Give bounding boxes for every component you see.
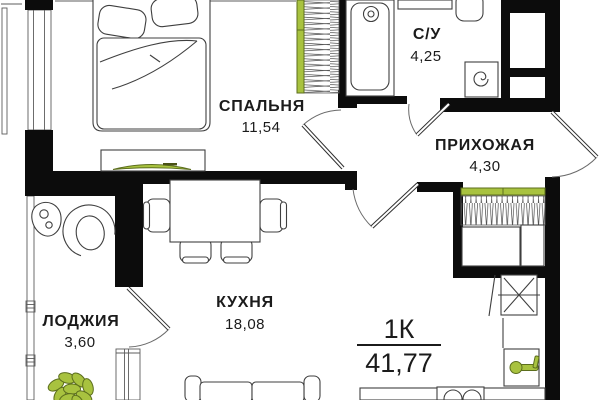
- washing-machine: [465, 62, 498, 97]
- bedroom-wardrobe: [297, 0, 339, 93]
- plant-icon: [46, 370, 95, 400]
- chair: [221, 239, 252, 263]
- total-area-block: 1К 41,77: [357, 314, 441, 378]
- loggia-area: 3,60: [64, 334, 95, 351]
- kitchen-area: 18,08: [225, 316, 265, 333]
- bathroom-label: С/У: [413, 26, 442, 43]
- bathroom-sink: [456, 0, 483, 21]
- dining-table-set: [144, 180, 287, 263]
- loggia-label: ЛОДЖИЯ: [42, 313, 119, 330]
- entrance-door: [552, 112, 597, 177]
- hallway-area: 4,30: [469, 158, 500, 175]
- bed: [93, 0, 210, 131]
- kitchen-door: [353, 184, 418, 227]
- bathroom-shelf: [398, 0, 452, 9]
- total-area-value: 41,77: [365, 348, 433, 378]
- bathtub: [346, 0, 394, 96]
- armchair: [53, 195, 123, 265]
- bedroom-area: 11,54: [242, 119, 281, 136]
- dining-table: [170, 180, 260, 242]
- side-table: [32, 202, 61, 236]
- bedroom-window: [28, 10, 51, 130]
- tv-stand: [101, 150, 205, 171]
- wardrobe-accent-strip: [297, 0, 304, 93]
- stove: [437, 387, 484, 400]
- loggia-window-south: [116, 349, 140, 400]
- floor-plan-svg: СПАЛЬНЯ 11,54 С/У 4,25 ПРИХОЖАЯ 4,30 КУХ…: [0, 0, 600, 400]
- bathroom-area: 4,25: [410, 48, 441, 65]
- chair: [180, 239, 211, 263]
- floor-plan: СПАЛЬНЯ 11,54 С/У 4,25 ПРИХОЖАЯ 4,30 КУХ…: [0, 0, 600, 400]
- bedroom-door: [303, 110, 343, 168]
- blanket: [97, 38, 206, 129]
- balcony-rail: [2, 8, 7, 134]
- kitchen-label: КУХНЯ: [216, 294, 274, 311]
- wardrobe-shelf: [462, 227, 520, 266]
- hallway-wardrobe: [461, 188, 545, 266]
- loggia-door: [128, 288, 169, 347]
- wardrobe-shelf: [521, 225, 544, 266]
- tv-detail: [163, 163, 177, 165]
- bathroom-door: [409, 104, 449, 135]
- chair: [260, 199, 287, 232]
- chair: [144, 199, 171, 232]
- bedroom-label: СПАЛЬНЯ: [219, 98, 305, 115]
- loggia-window-west: [26, 196, 35, 400]
- vent-shaft: [498, 275, 540, 315]
- hallway-label: ПРИХОЖАЯ: [435, 137, 535, 154]
- apartment-type-label: 1К: [384, 314, 415, 344]
- sofa: [185, 376, 320, 400]
